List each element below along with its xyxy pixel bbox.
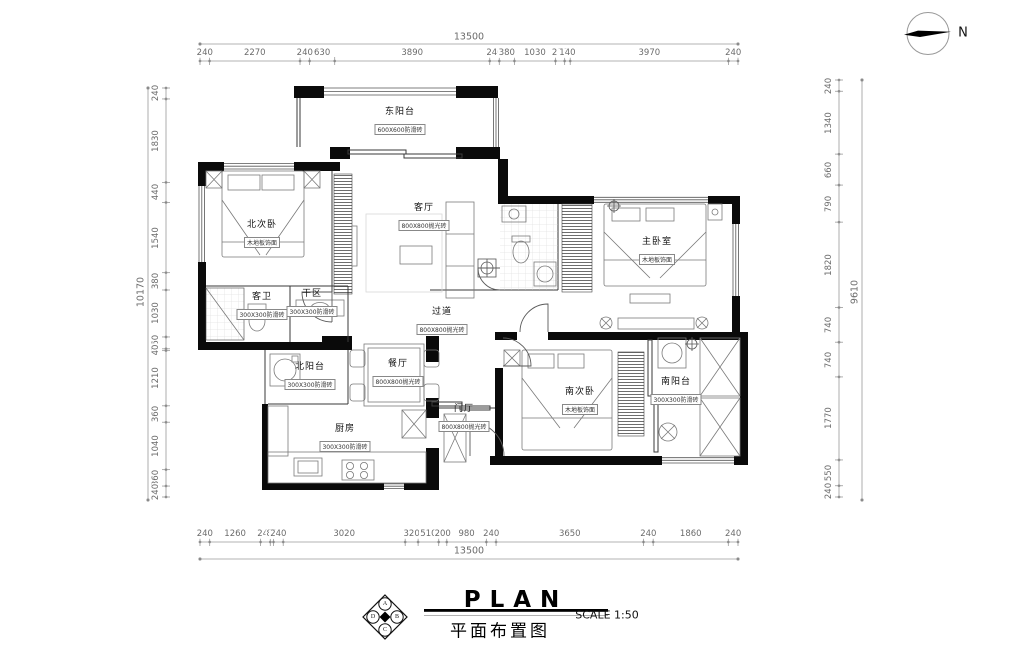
plan-title-en: PLAN [464,587,569,613]
room-name: 东阳台 [374,104,425,117]
room-label-foyer: 门厅 800X800抛光砖 [438,401,489,433]
dim-label: 240 [196,530,214,539]
room-label-dining-room: 餐厅 800X800抛光砖 [372,356,423,388]
dim-label: 140 [558,49,576,58]
room-name: 客厅 [398,200,449,213]
room-finish: 300X300防滑砖 [319,441,370,452]
north-label: N [958,26,968,41]
dim-label: 550 [825,464,834,482]
dim-overall-top: 13500 [453,32,485,42]
room-finish: 800X800抛光砖 [416,324,467,335]
plan-title-cn: 平面布置图 [450,617,550,642]
room-label-kitchen: 厨房 300X300防滑砖 [319,421,370,453]
room-label-living-room: 客厅 800X800抛光砖 [398,200,449,232]
dim-label: 1210 [152,366,161,390]
dim-label: 1260 [223,530,247,539]
dim-label: 240 [152,84,161,102]
dim-label: 980 [457,530,475,539]
room-finish: 800X800抛光砖 [398,220,449,231]
dim-label: 380 [152,272,161,290]
dim-label: 240 [482,530,500,539]
room-name: 南阳台 [650,374,701,387]
north-arrow-icon [904,13,951,55]
dim-overall-bottom: 13500 [453,546,485,556]
dim-label: 3970 [638,49,662,58]
dim-overall-right: 9610 [850,279,860,305]
logo-letter-c: C [383,627,387,633]
room-finish: 木地板饰面 [562,404,598,415]
dim-label: 630 [313,49,331,58]
dim-label: 240 [639,530,657,539]
dim-label: 1820 [825,253,834,277]
room-label-north-balcony: 北阳台 300X300防滑砖 [284,359,335,391]
dim-label: 3020 [332,530,356,539]
dim-label: 1340 [825,111,834,135]
room-finish: 300X300防滑砖 [284,379,335,390]
dim-label: 200 [434,530,452,539]
room-label-master-bedroom: 主卧室 木地板饰面 [639,234,675,266]
dim-label: 360 [152,405,161,423]
dim-label: 380 [498,49,516,58]
room-name: 餐厅 [372,356,423,369]
room-name: 北阳台 [284,359,335,372]
dim-label: 1830 [152,129,161,153]
dim-label: 40 [152,343,161,356]
room-name: 主卧室 [639,234,675,247]
room-finish: 木地板饰面 [639,254,675,265]
dim-label: 1030 [152,302,161,326]
dim-label: 1040 [152,434,161,458]
dim-label: 240 [269,530,287,539]
room-label-east-balcony: 东阳台 600X600防滑砖 [374,104,425,136]
dim-label: 790 [825,194,834,212]
room-label-dry-area: 干区 300X300防滑砖 [286,286,337,318]
dim-label: 3890 [400,49,424,58]
room-name: 北次卧 [244,217,280,230]
room-label-corridor: 过道 800X800抛光砖 [416,304,467,336]
dim-label: 240 [152,482,161,500]
room-label-south-balcony: 南阳台 300X300防滑砖 [650,374,701,406]
dim-label: 1860 [679,530,703,539]
room-finish: 300X300防滑砖 [650,394,701,405]
plan-scale: SCALE 1:50 [575,609,638,622]
room-name: 门厅 [438,401,489,414]
dim-label: 2270 [243,49,267,58]
dim-label: 740 [825,350,834,368]
room-label-guest-bath: 客卫 300X300防滑砖 [236,289,287,321]
dim-label: 1770 [825,407,834,431]
room-name: 客卫 [236,289,287,302]
dim-label: 740 [825,316,834,334]
room-name: 厨房 [319,421,370,434]
dim-label: 240 [196,49,214,58]
furniture [206,171,740,483]
room-label-south-bedroom: 南次卧 木地板饰面 [562,384,598,416]
room-finish: 木地板饰面 [244,237,280,248]
dim-label: 1540 [152,226,161,250]
logo-letter-d: D [371,614,375,620]
dim-label: 660 [825,160,834,178]
room-finish: 300X300防滑砖 [236,309,287,320]
dim-label: 240 [724,530,742,539]
dim-label: 3650 [558,530,582,539]
dim-overall-left: 10170 [136,276,146,308]
room-name: 干区 [286,286,337,299]
dim-label: 240 [296,49,314,58]
room-finish: 800X800抛光砖 [372,376,423,387]
room-finish: 800X800抛光砖 [438,421,489,432]
dim-label: 240 [825,482,834,500]
dim-label: 1030 [523,49,547,58]
room-name: 南次卧 [562,384,598,397]
room-finish: 600X600防滑砖 [374,124,425,135]
dim-label: 240 [724,49,742,58]
dim-label: 240 [825,77,834,95]
room-label-north-bedroom: 北次卧 木地板饰面 [244,217,280,249]
floor-plan-canvas: 13500 13500 10170 9610 东阳台 600X600防滑砖 北次… [0,0,1024,653]
room-name: 过道 [416,304,467,317]
dim-label: 440 [152,183,161,201]
logo-letter-b: B [395,614,399,620]
dim-label: 320 [403,530,421,539]
room-finish: 300X300防滑砖 [286,306,337,317]
logo-letter-a: A [383,601,387,607]
